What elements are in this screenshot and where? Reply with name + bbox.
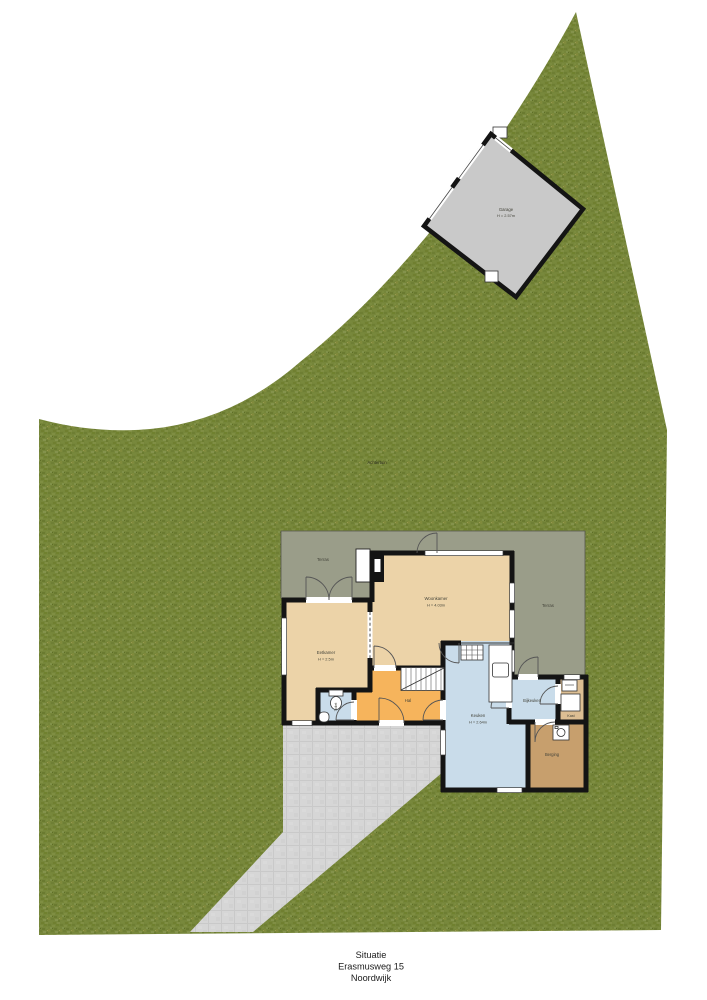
site-plan-drawing: Achtertuin Garage H = 2.57m	[0, 0, 707, 1000]
label-berging: Berging	[545, 752, 560, 757]
sliding-opening	[368, 612, 373, 658]
cupboard-icon	[561, 694, 580, 711]
caption-line-2: Erasmusweg 15	[338, 962, 404, 972]
label-hal: Hal	[405, 698, 411, 703]
sink-icon	[493, 663, 509, 677]
caption-line-3: Noordwijk	[351, 973, 392, 983]
washer-icon	[553, 725, 569, 740]
caption-line-1: Situatie	[356, 950, 387, 960]
garage-label: Garage	[499, 207, 514, 212]
label-terras-right: Terras	[542, 603, 554, 608]
label-terras-left: Terras	[317, 557, 329, 562]
label-kast: Kast	[567, 714, 574, 718]
garage-height: H = 2.57m	[497, 213, 515, 218]
boiler-icon	[562, 680, 577, 691]
label-keuken: Keuken	[471, 713, 486, 718]
garden-label: Achtertuin	[367, 460, 387, 465]
stairs	[401, 668, 444, 691]
label-eetkamer: Eetkamer	[317, 650, 336, 655]
caption: Situatie Erasmusweg 15 Noordwijk	[338, 950, 404, 983]
garage-side-door	[485, 271, 498, 282]
toilet-tank	[329, 690, 343, 696]
label-toilet: Toilet	[334, 703, 338, 712]
label-woonkamer: Woonkamer	[424, 596, 448, 601]
site-plan-page: Achtertuin Garage H = 2.57m	[0, 0, 707, 1000]
label-woonkamer-height: H = 4.03m	[427, 603, 445, 608]
kast-fixtures	[561, 680, 580, 711]
label-eetkamer-height: H = 2.5m	[318, 657, 334, 662]
label-keuken-height: H = 2.64m	[469, 720, 487, 725]
label-bijkeuken: Bijkeuken	[523, 698, 541, 703]
hand-basin-icon	[319, 712, 329, 722]
